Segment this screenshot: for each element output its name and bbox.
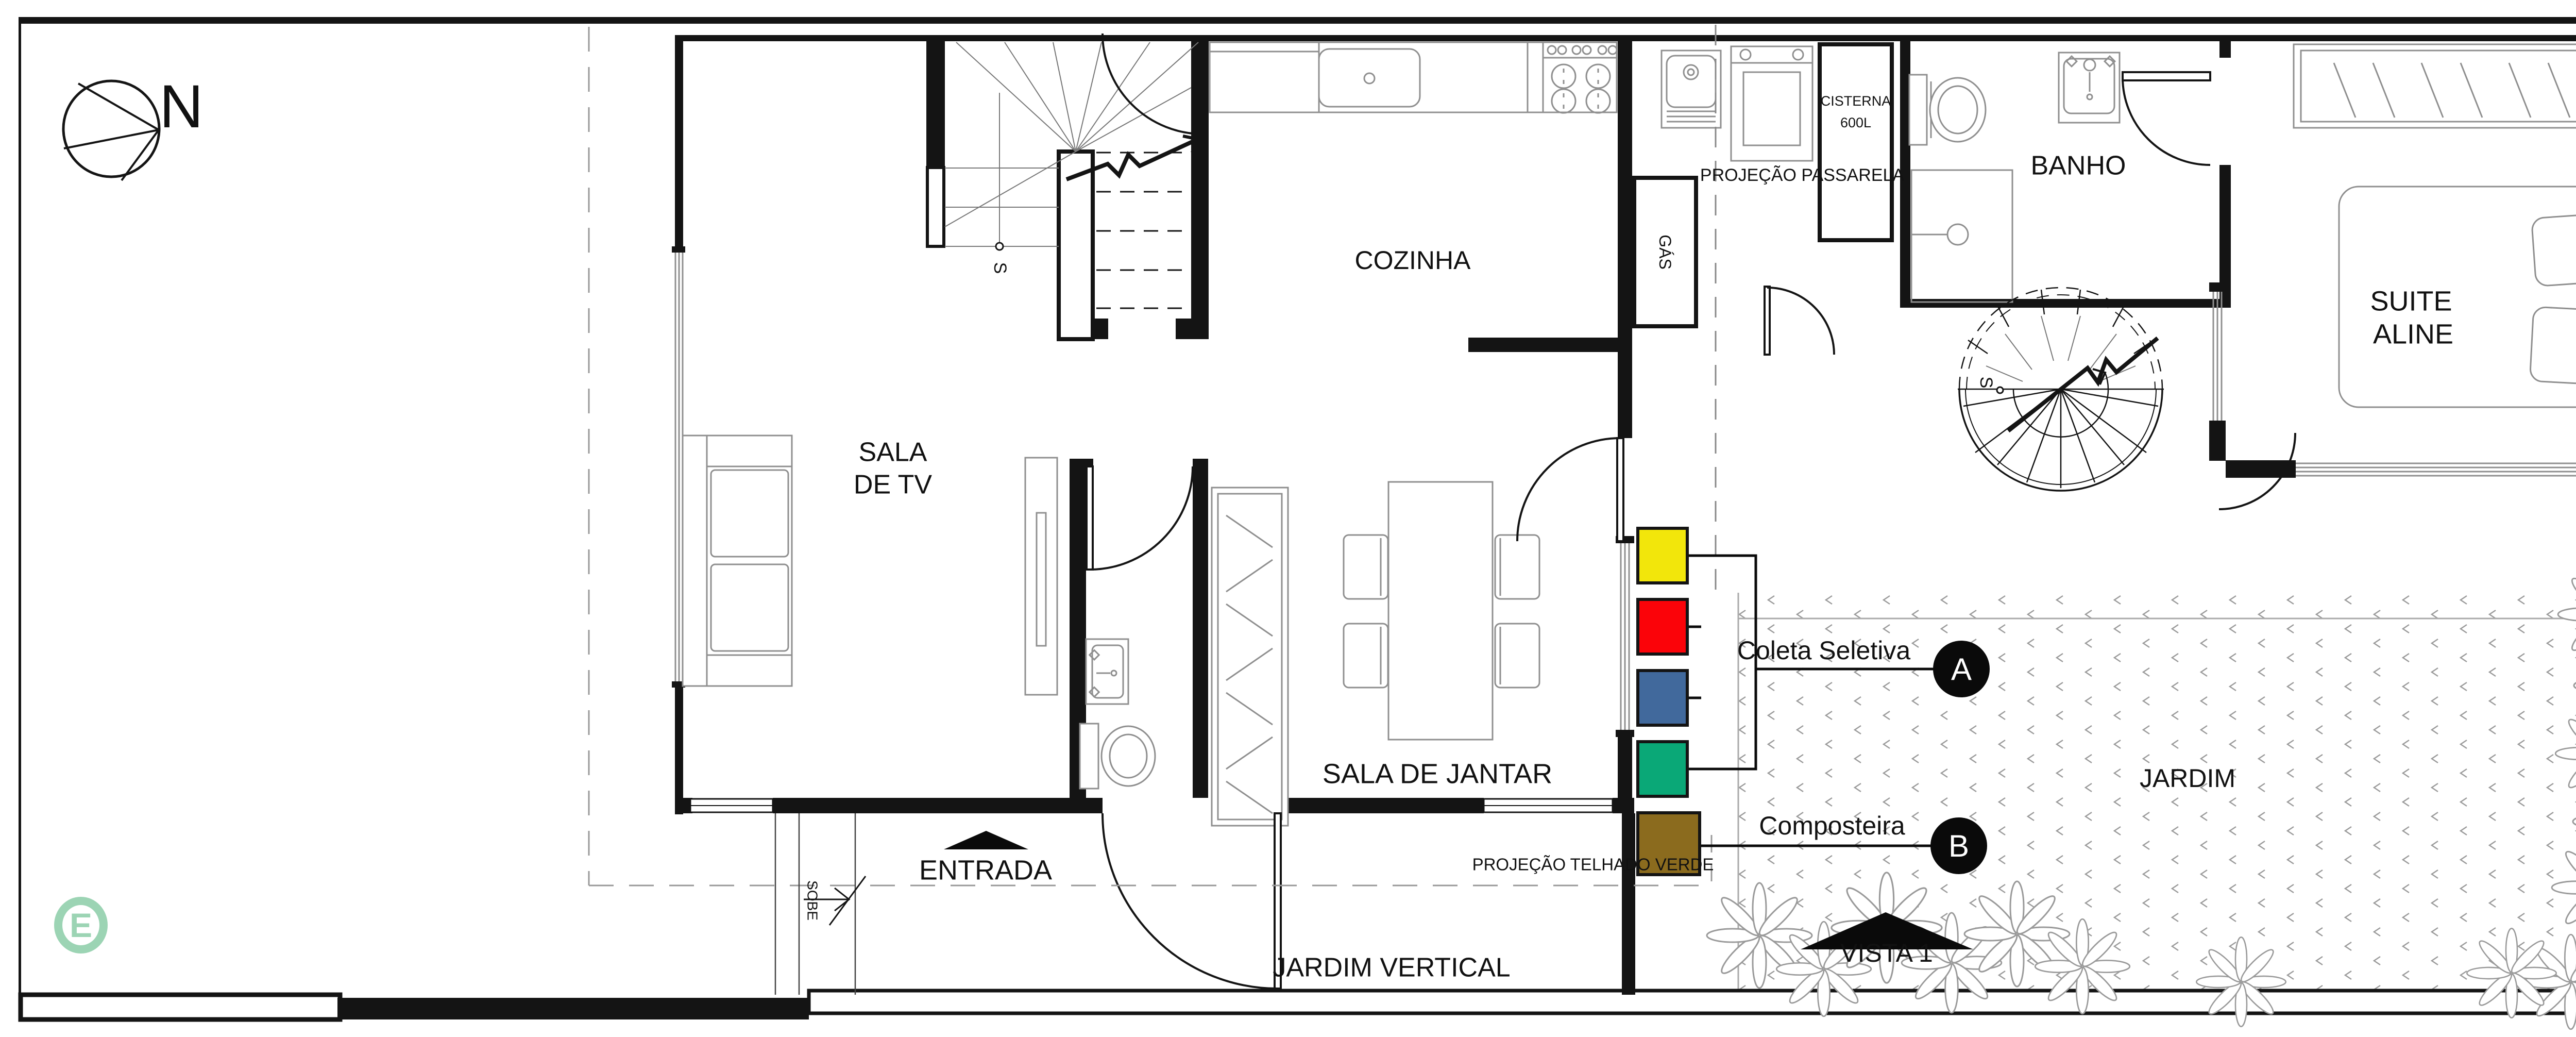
lavabo-toilet-icon bbox=[1080, 724, 1155, 789]
room-label-sala-tv-2: DE TV bbox=[854, 471, 932, 499]
cisterna-label-2: 600L bbox=[1840, 115, 1871, 130]
gas-label: GÁS bbox=[1656, 235, 1673, 270]
room-label-suite-2: ALINE bbox=[2373, 320, 2453, 349]
recycle-bin-green bbox=[1636, 740, 1689, 798]
recycle-bin-blue bbox=[1636, 669, 1689, 727]
legend-coleta-label: Coleta Seletiva bbox=[1737, 637, 1910, 664]
north-label: N bbox=[159, 75, 203, 139]
projection-telhado-label: PROJEÇÃO TELHADO VERDE bbox=[1472, 856, 1714, 874]
room-label-sala-tv-1: SALA bbox=[859, 439, 927, 467]
sobe-label: SOBE bbox=[805, 880, 820, 921]
main-stair bbox=[926, 39, 1209, 339]
room-label-banho: BANHO bbox=[2031, 152, 2126, 180]
legend-tag-b: B bbox=[1930, 817, 1987, 874]
recycle-bin-yellow bbox=[1636, 527, 1689, 584]
jardim-vertical-label: JARDIM VERTICAL bbox=[1273, 954, 1510, 982]
floor-plan: N COZINHA CISTERNA 600L PROJEÇÃO PASSARE… bbox=[0, 0, 2576, 1037]
legend-composteira-label: Composteira bbox=[1759, 812, 1905, 840]
sofa-icon bbox=[683, 436, 792, 686]
dining-furniture bbox=[1344, 482, 1539, 740]
projection-passarela-label: PROJEÇÃO PASSARELA bbox=[1700, 166, 1904, 185]
shower-icon bbox=[1911, 170, 2012, 302]
cistern bbox=[1820, 44, 1892, 240]
entrada-arrow-icon bbox=[944, 831, 1028, 849]
room-label-jardim: JARDIM bbox=[2140, 765, 2235, 792]
wardrobe bbox=[2294, 44, 2576, 128]
spiral-stair bbox=[1958, 288, 2164, 491]
washing-machine-icon bbox=[1731, 46, 1812, 161]
kitchen-fixtures bbox=[1210, 42, 1617, 113]
bathroom-sink-icon bbox=[2059, 53, 2120, 123]
room-label-suite-1: SUITE bbox=[2370, 287, 2452, 316]
logo-badge: E bbox=[54, 897, 108, 954]
main-stair-s-label: S bbox=[990, 262, 1009, 274]
spiral-stair-s-label: S bbox=[1976, 377, 1995, 389]
kitchen-sink-icon bbox=[1319, 49, 1420, 107]
toilet-icon bbox=[1909, 75, 1986, 145]
entrada-label: ENTRADA bbox=[919, 856, 1052, 885]
room-label-sala-jantar: SALA DE JANTAR bbox=[1323, 760, 1552, 789]
shelf-unit bbox=[1212, 488, 1288, 826]
tv-panel-icon bbox=[1025, 458, 1057, 695]
lavabo bbox=[1070, 459, 1208, 798]
room-label-cozinha: COZINHA bbox=[1355, 247, 1471, 274]
vista-label: VISTA 1 bbox=[1840, 940, 1933, 967]
cisterna-label-1: CISTERNA bbox=[1821, 94, 1891, 108]
plan-linework bbox=[0, 0, 2576, 1037]
lavabo-sink-icon bbox=[1086, 639, 1128, 704]
recycle-bin-red bbox=[1636, 598, 1689, 656]
north-compass-icon bbox=[63, 81, 159, 180]
laundry-sink-icon bbox=[1662, 51, 1721, 128]
legend-tag-a: A bbox=[1933, 641, 1990, 697]
service-area bbox=[1634, 44, 1892, 326]
